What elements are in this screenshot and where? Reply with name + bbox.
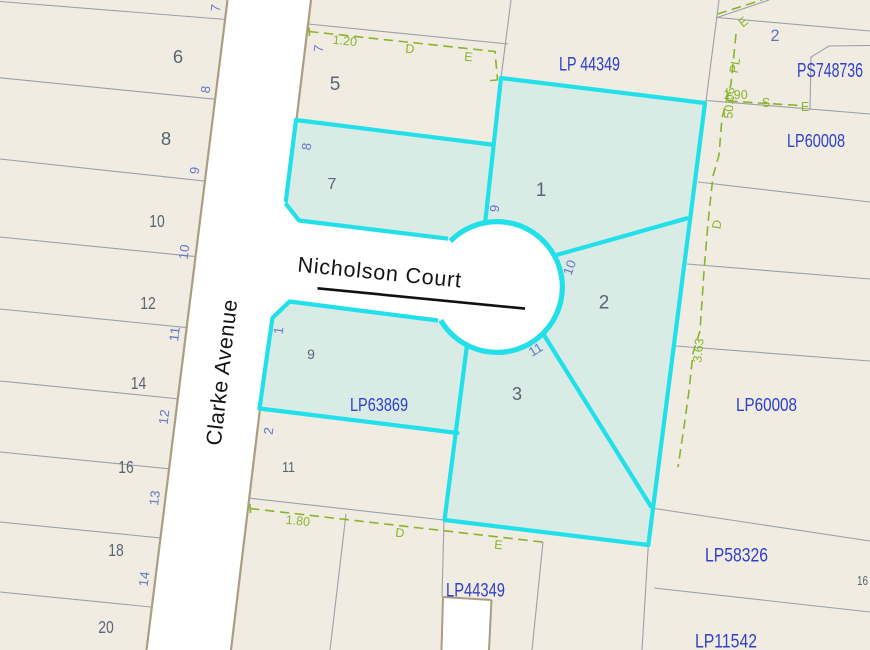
svg-text:D: D <box>405 42 415 57</box>
svg-text:3.63: 3.63 <box>690 338 706 364</box>
svg-text:LP60008: LP60008 <box>787 131 845 151</box>
svg-text:LP 44349: LP 44349 <box>559 55 620 76</box>
svg-text:3: 3 <box>512 384 522 404</box>
svg-text:8: 8 <box>161 128 171 149</box>
svg-text:11: 11 <box>282 459 295 476</box>
svg-text:6: 6 <box>173 46 183 67</box>
svg-text:14: 14 <box>136 571 153 588</box>
svg-text:12: 12 <box>140 293 156 313</box>
svg-text:LP58326: LP58326 <box>705 545 768 567</box>
svg-text:D: D <box>395 526 405 541</box>
svg-text:10: 10 <box>149 211 165 231</box>
svg-text:PS748736: PS748736 <box>797 60 863 82</box>
svg-text:7: 7 <box>328 176 337 193</box>
svg-text:E: E <box>801 100 809 114</box>
svg-text:2: 2 <box>599 293 610 314</box>
svg-text:E: E <box>494 538 504 553</box>
svg-text:12: 12 <box>156 409 173 426</box>
svg-text:1.20: 1.20 <box>332 33 358 49</box>
svg-text:2: 2 <box>770 27 779 45</box>
svg-text:S: S <box>762 96 770 110</box>
svg-text:LP63869: LP63869 <box>350 394 408 415</box>
svg-text:1.80: 1.80 <box>285 513 311 529</box>
svg-text:LP60008: LP60008 <box>736 395 797 415</box>
svg-text:20: 20 <box>98 617 114 637</box>
svg-text:LP11542: LP11542 <box>695 632 757 650</box>
svg-text:16: 16 <box>118 457 134 477</box>
svg-text:11: 11 <box>166 326 183 343</box>
svg-text:1: 1 <box>536 180 547 201</box>
svg-text:E: E <box>464 50 474 65</box>
svg-text:9: 9 <box>307 346 315 362</box>
svg-text:50.06: 50.06 <box>721 87 737 119</box>
svg-text:LP44349: LP44349 <box>446 581 505 602</box>
svg-text:10: 10 <box>176 244 193 261</box>
svg-text:16: 16 <box>857 574 868 588</box>
svg-text:14: 14 <box>131 373 147 393</box>
svg-text:13: 13 <box>146 490 163 507</box>
svg-text:18: 18 <box>108 540 124 560</box>
svg-text:5: 5 <box>330 74 341 95</box>
svg-text:PL: PL <box>727 57 743 75</box>
